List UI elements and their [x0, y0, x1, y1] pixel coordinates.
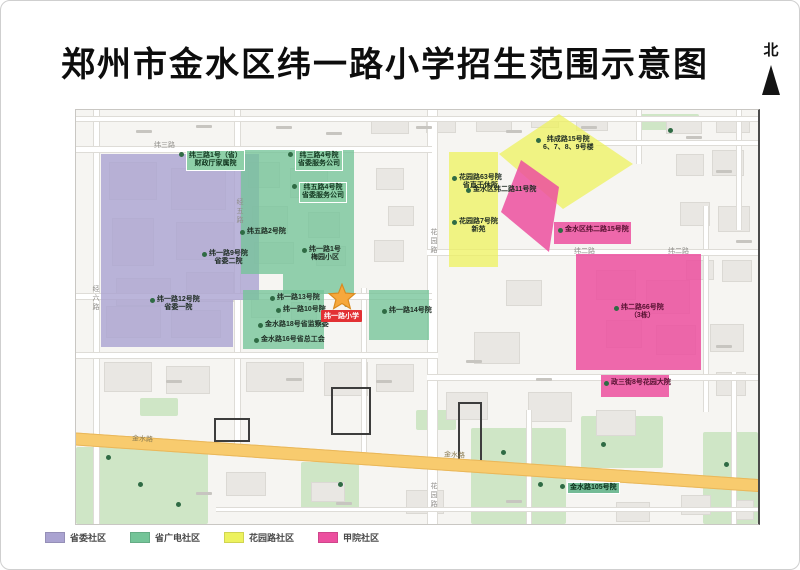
- road-label-jinshuilu-2: 金水路: [444, 449, 466, 460]
- micro-label: [506, 500, 522, 503]
- tree-icon: [558, 228, 563, 233]
- zone-jiayuan-northwest: [501, 160, 559, 252]
- tree-icon: [614, 306, 619, 311]
- micro-label: [286, 378, 302, 381]
- micro-label: [276, 126, 292, 129]
- area-label-text: 纬二路66号院（3栋）: [621, 304, 664, 321]
- tree-icon: [452, 176, 457, 181]
- tree-icon: [288, 152, 293, 157]
- legend-swatch-shengwei: [45, 532, 65, 543]
- tree-icon: [106, 455, 111, 460]
- road-vertical: [731, 372, 737, 524]
- area-label-weiyilu14: 纬一路14号院: [382, 307, 432, 315]
- legend-swatch-huayuanlu: [224, 532, 244, 543]
- building-outline: [214, 418, 250, 442]
- road-label-jingwulu: 经五路: [234, 198, 244, 225]
- area-label-jinshuilu16: 金水路16号省总工会: [254, 336, 325, 344]
- tree-icon: [176, 502, 181, 507]
- building: [112, 218, 154, 266]
- road-horizontal: [76, 146, 432, 153]
- tree-icon: [202, 252, 207, 257]
- tree-icon: [536, 138, 541, 143]
- building: [308, 212, 340, 238]
- micro-label: [581, 126, 597, 129]
- tree-icon: [724, 462, 729, 467]
- area-label-shengwei2yuan: 纬一路9号院省委二院: [202, 250, 248, 267]
- area-label-meiyuan: 纬一路1号梅园小区: [302, 246, 341, 263]
- area-label-jinshuilu105: 金水路105号院: [560, 482, 620, 494]
- tree-icon: [138, 482, 143, 487]
- road-vertical: [703, 206, 709, 412]
- school-label: 纬一路小学: [321, 310, 362, 322]
- legend-swatch-jiayuan: [318, 532, 338, 543]
- tree-icon: [276, 308, 281, 313]
- building: [656, 325, 696, 355]
- area-label-weiwulu2: 纬五路2号院: [240, 228, 286, 236]
- tree-icon: [538, 482, 543, 487]
- tree-icon: [302, 248, 307, 253]
- building-outline: [331, 387, 371, 435]
- tree-icon: [466, 188, 471, 193]
- area-label-text: 花园路7号院新苑: [459, 218, 498, 235]
- tree-icon: [179, 152, 184, 157]
- building: [171, 168, 226, 210]
- road-vertical: [736, 110, 742, 230]
- area-label-text: 金水路16号省总工会: [261, 336, 325, 344]
- tree-icon: [338, 482, 343, 487]
- area-label-weierlu11: 金水区纬二路11号院: [466, 186, 536, 194]
- legend-item-shengwei: 省委社区: [45, 531, 106, 544]
- area-label-text: 纬三路1号（省）财政厅家属院: [186, 150, 245, 171]
- building: [248, 162, 280, 188]
- tree-icon: [601, 442, 606, 447]
- tree-icon: [382, 309, 387, 314]
- building: [376, 168, 404, 190]
- micro-label: [536, 378, 552, 381]
- tree-icon: [270, 296, 275, 301]
- area-label-text: 纬一路14号院: [389, 307, 432, 315]
- area-label-weiyilu13: 纬一路13号院: [270, 294, 320, 302]
- legend-label: 花园路社区: [249, 531, 294, 544]
- building: [606, 320, 642, 348]
- area-label-weiyilu10: 纬一路10号院: [276, 306, 326, 314]
- micro-label: [466, 360, 482, 363]
- legend-item-guangdian: 省广电社区: [130, 531, 200, 544]
- legend: 省委社区 省广电社区 花园路社区 甲院社区: [45, 531, 379, 544]
- micro-label: [196, 125, 212, 128]
- building: [718, 206, 750, 232]
- area-label-weisanlu4: 纬三路4号院省委服务公司: [288, 150, 343, 171]
- road-label-weierlu: 纬二路: [574, 246, 595, 256]
- school-star-icon: [328, 283, 356, 311]
- micro-label: [136, 130, 152, 133]
- legend-label: 甲院社区: [343, 531, 379, 544]
- tree-icon: [240, 230, 245, 235]
- road-label-huayuanlu: 花园路: [428, 228, 438, 255]
- road-label-huayuanlu-2: 花园路: [428, 482, 438, 509]
- area-label-text: 纬五路2号院: [247, 228, 286, 236]
- legend-item-huayuanlu: 花园路社区: [224, 531, 294, 544]
- area-label-text: 纬一路1号梅园小区: [309, 246, 341, 263]
- micro-label: [716, 345, 732, 348]
- road-horizontal: [216, 507, 758, 512]
- building: [226, 472, 266, 496]
- legend-label: 省广电社区: [155, 531, 200, 544]
- road-horizontal: [76, 116, 758, 122]
- micro-label: [686, 136, 702, 139]
- north-arrow-icon: [762, 65, 780, 95]
- road-horizontal: [596, 140, 758, 146]
- tree-icon: [501, 450, 506, 455]
- area-label-weierlu15: 金水区纬二路15号院: [558, 226, 629, 234]
- building: [374, 240, 404, 262]
- page: 郑州市金水区纬一路小学招生范围示意图 北 纬三路 纬二路 纬二路 花园路 花园路…: [0, 0, 800, 570]
- building: [681, 495, 711, 515]
- building: [596, 410, 636, 436]
- area-label-caizhengting: 纬三路1号（省）财政厅家属院: [179, 150, 245, 171]
- area-label-shengwei1yuan: 纬一路12号院省委一院: [150, 296, 200, 313]
- building: [104, 362, 152, 392]
- area-label-jinshuilu18: 金水路18号省监察委: [258, 321, 329, 329]
- tree-icon: [292, 184, 297, 189]
- tree-icon: [604, 381, 609, 386]
- area-label-weichenglu15: 纬成路15号院6、7、8、9号楼: [536, 136, 594, 153]
- area-label-text: 纬一路9号院省委二院: [209, 250, 248, 267]
- micro-label: [336, 502, 352, 505]
- building: [506, 280, 542, 306]
- micro-label: [326, 132, 342, 135]
- park: [140, 398, 178, 416]
- area-label-text: 金水区纬二路15号院: [565, 226, 629, 234]
- map-canvas: 纬三路 纬二路 纬二路 花园路 花园路 经五路 经六路 金水路 金水路 纬三路1…: [75, 109, 760, 525]
- area-label-zhengsanjie8: 政三街8号花园大院: [604, 379, 671, 387]
- building: [109, 162, 157, 200]
- legend-swatch-guangdian: [130, 532, 150, 543]
- area-label-huayuanlu7: 花园路7号院新苑: [452, 218, 498, 235]
- building: [388, 206, 414, 226]
- building: [254, 242, 294, 264]
- building: [722, 260, 752, 282]
- tree-icon: [254, 338, 259, 343]
- micro-label: [376, 380, 392, 383]
- area-label-weiwulu4: 纬五路4号院省委服务公司: [292, 182, 347, 203]
- micro-label: [506, 130, 522, 133]
- building: [376, 364, 414, 392]
- road-label-jingliulu: 经六路: [90, 285, 100, 312]
- building: [616, 502, 650, 522]
- area-label-text: 金水区纬二路11号院: [473, 186, 536, 194]
- area-label-text: 纬一路13号院: [277, 294, 320, 302]
- building: [676, 154, 704, 176]
- area-label-text: 金水路105号院: [567, 482, 620, 494]
- road-label-weierlu-2: 纬二路: [668, 246, 689, 256]
- tree-icon: [150, 298, 155, 303]
- micro-label: [416, 126, 432, 129]
- area-label-text: 金水路18号省监察委: [265, 321, 329, 329]
- area-label-weierlu66: 纬二路66号院（3栋）: [614, 304, 664, 321]
- building: [246, 362, 304, 392]
- legend-label: 省委社区: [70, 531, 106, 544]
- legend-item-jiayuan: 甲院社区: [318, 531, 379, 544]
- micro-label: [196, 492, 212, 495]
- area-label-text: 纬三路4号院省委服务公司: [295, 150, 343, 171]
- road-label-weisanlu: 纬三路: [154, 140, 175, 150]
- road-horizontal: [76, 352, 438, 359]
- area-label-text: 纬成路15号院6、7、8、9号楼: [543, 136, 594, 153]
- area-label-text: 纬一路12号院省委一院: [157, 296, 200, 313]
- tree-icon: [452, 220, 457, 225]
- north-indicator: 北: [755, 39, 787, 95]
- area-label-text: 纬一路10号院: [283, 306, 326, 314]
- north-label: 北: [763, 42, 778, 59]
- micro-label: [736, 240, 752, 243]
- road-horizontal: [76, 293, 432, 300]
- road-vertical: [93, 110, 100, 524]
- area-label-text: 纬五路4号院省委服务公司: [299, 182, 347, 203]
- zone-huayuanlu-diamond: [499, 114, 633, 209]
- area-label-text: 政三街8号花园大院: [611, 379, 671, 387]
- building: [596, 270, 636, 300]
- road-label-jinshuilu: 金水路: [132, 433, 154, 444]
- tree-icon: [560, 484, 565, 489]
- micro-label: [166, 380, 182, 383]
- building: [686, 260, 714, 280]
- building: [171, 310, 221, 338]
- building: [528, 392, 572, 422]
- tree-icon: [258, 323, 263, 328]
- page-title: 郑州市金水区纬一路小学招生范围示意图: [1, 37, 769, 86]
- tree-icon: [668, 128, 673, 133]
- micro-label: [716, 170, 732, 173]
- road-horizontal: [427, 374, 758, 381]
